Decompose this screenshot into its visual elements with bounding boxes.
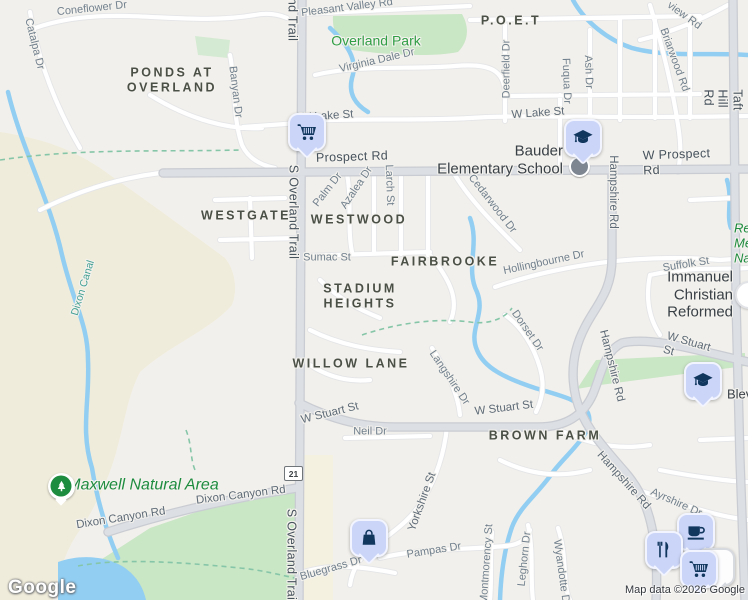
map-base-layer <box>0 0 748 600</box>
school-marker[interactable] <box>564 119 602 157</box>
small-park-area <box>195 36 230 58</box>
google-logo: Google <box>8 577 76 599</box>
shopping-bag-marker[interactable] <box>350 519 388 557</box>
restaurant-marker[interactable] <box>645 531 683 569</box>
map-attribution: Map data ©2026 Google <box>625 584 745 596</box>
school-marker[interactable] <box>684 362 722 400</box>
nature-pin-circle <box>51 476 72 497</box>
shopping-cart-marker[interactable] <box>288 113 326 151</box>
route-21-shield: 21 <box>284 466 303 481</box>
overland-park-area <box>333 14 467 55</box>
map-canvas[interactable]: PONDS AT OVERLANDWESTGATEWESTWOODP.O.E.T… <box>0 0 748 600</box>
terrain-strip <box>303 455 333 600</box>
shopping-cart-marker[interactable] <box>680 550 718 588</box>
nature-marker[interactable] <box>48 473 75 500</box>
